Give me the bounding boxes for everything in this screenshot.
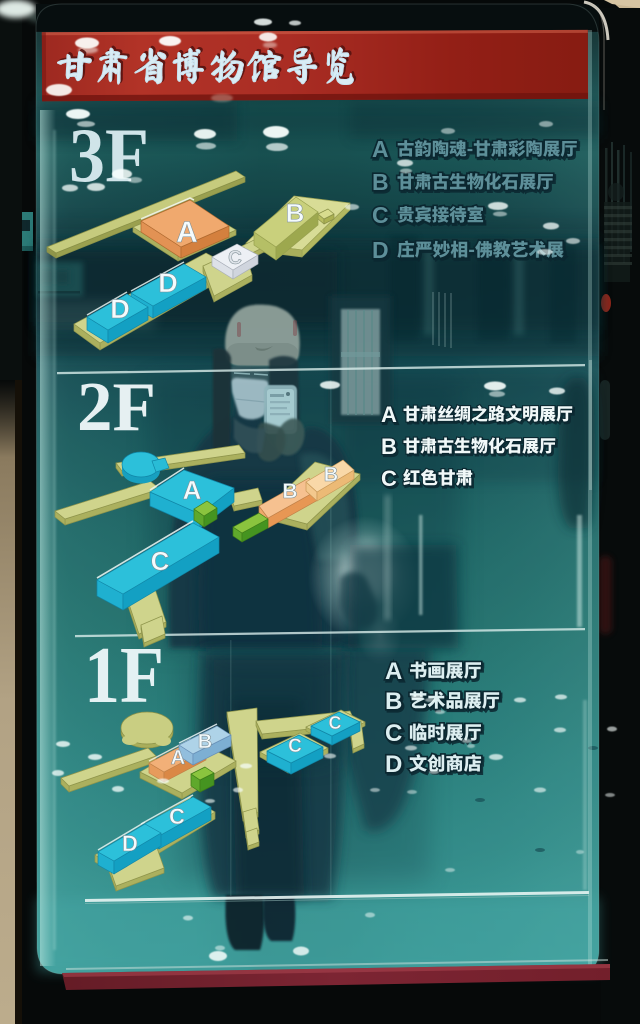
svg-text:A: A: [183, 475, 202, 505]
svg-text:A: A: [171, 747, 185, 769]
svg-text:D: D: [372, 237, 389, 263]
svg-text:A: A: [385, 658, 402, 685]
svg-text:D: D: [385, 751, 402, 778]
svg-text:D: D: [122, 831, 138, 856]
svg-text:B: B: [286, 198, 305, 228]
svg-text:C: C: [288, 736, 302, 757]
svg-text:D: D: [158, 268, 178, 298]
svg-text:B: B: [381, 434, 397, 459]
svg-text:C: C: [169, 804, 185, 829]
svg-text:C: C: [151, 546, 170, 576]
svg-text:C: C: [381, 466, 397, 491]
svg-text:D: D: [110, 294, 130, 324]
svg-text:2F: 2F: [77, 369, 156, 446]
svg-text:B: B: [385, 688, 402, 715]
svg-text:C: C: [385, 720, 402, 747]
svg-text:B: B: [282, 480, 297, 503]
svg-text:A: A: [176, 216, 198, 249]
svg-text:A: A: [372, 136, 389, 162]
svg-text:C: C: [372, 202, 389, 228]
svg-text:C: C: [228, 248, 242, 269]
svg-text:A: A: [381, 402, 397, 427]
svg-text:B: B: [372, 169, 389, 195]
svg-text:B: B: [324, 464, 338, 486]
svg-text:C: C: [329, 713, 342, 733]
svg-text:1F: 1F: [84, 632, 164, 720]
svg-text:B: B: [198, 731, 212, 753]
